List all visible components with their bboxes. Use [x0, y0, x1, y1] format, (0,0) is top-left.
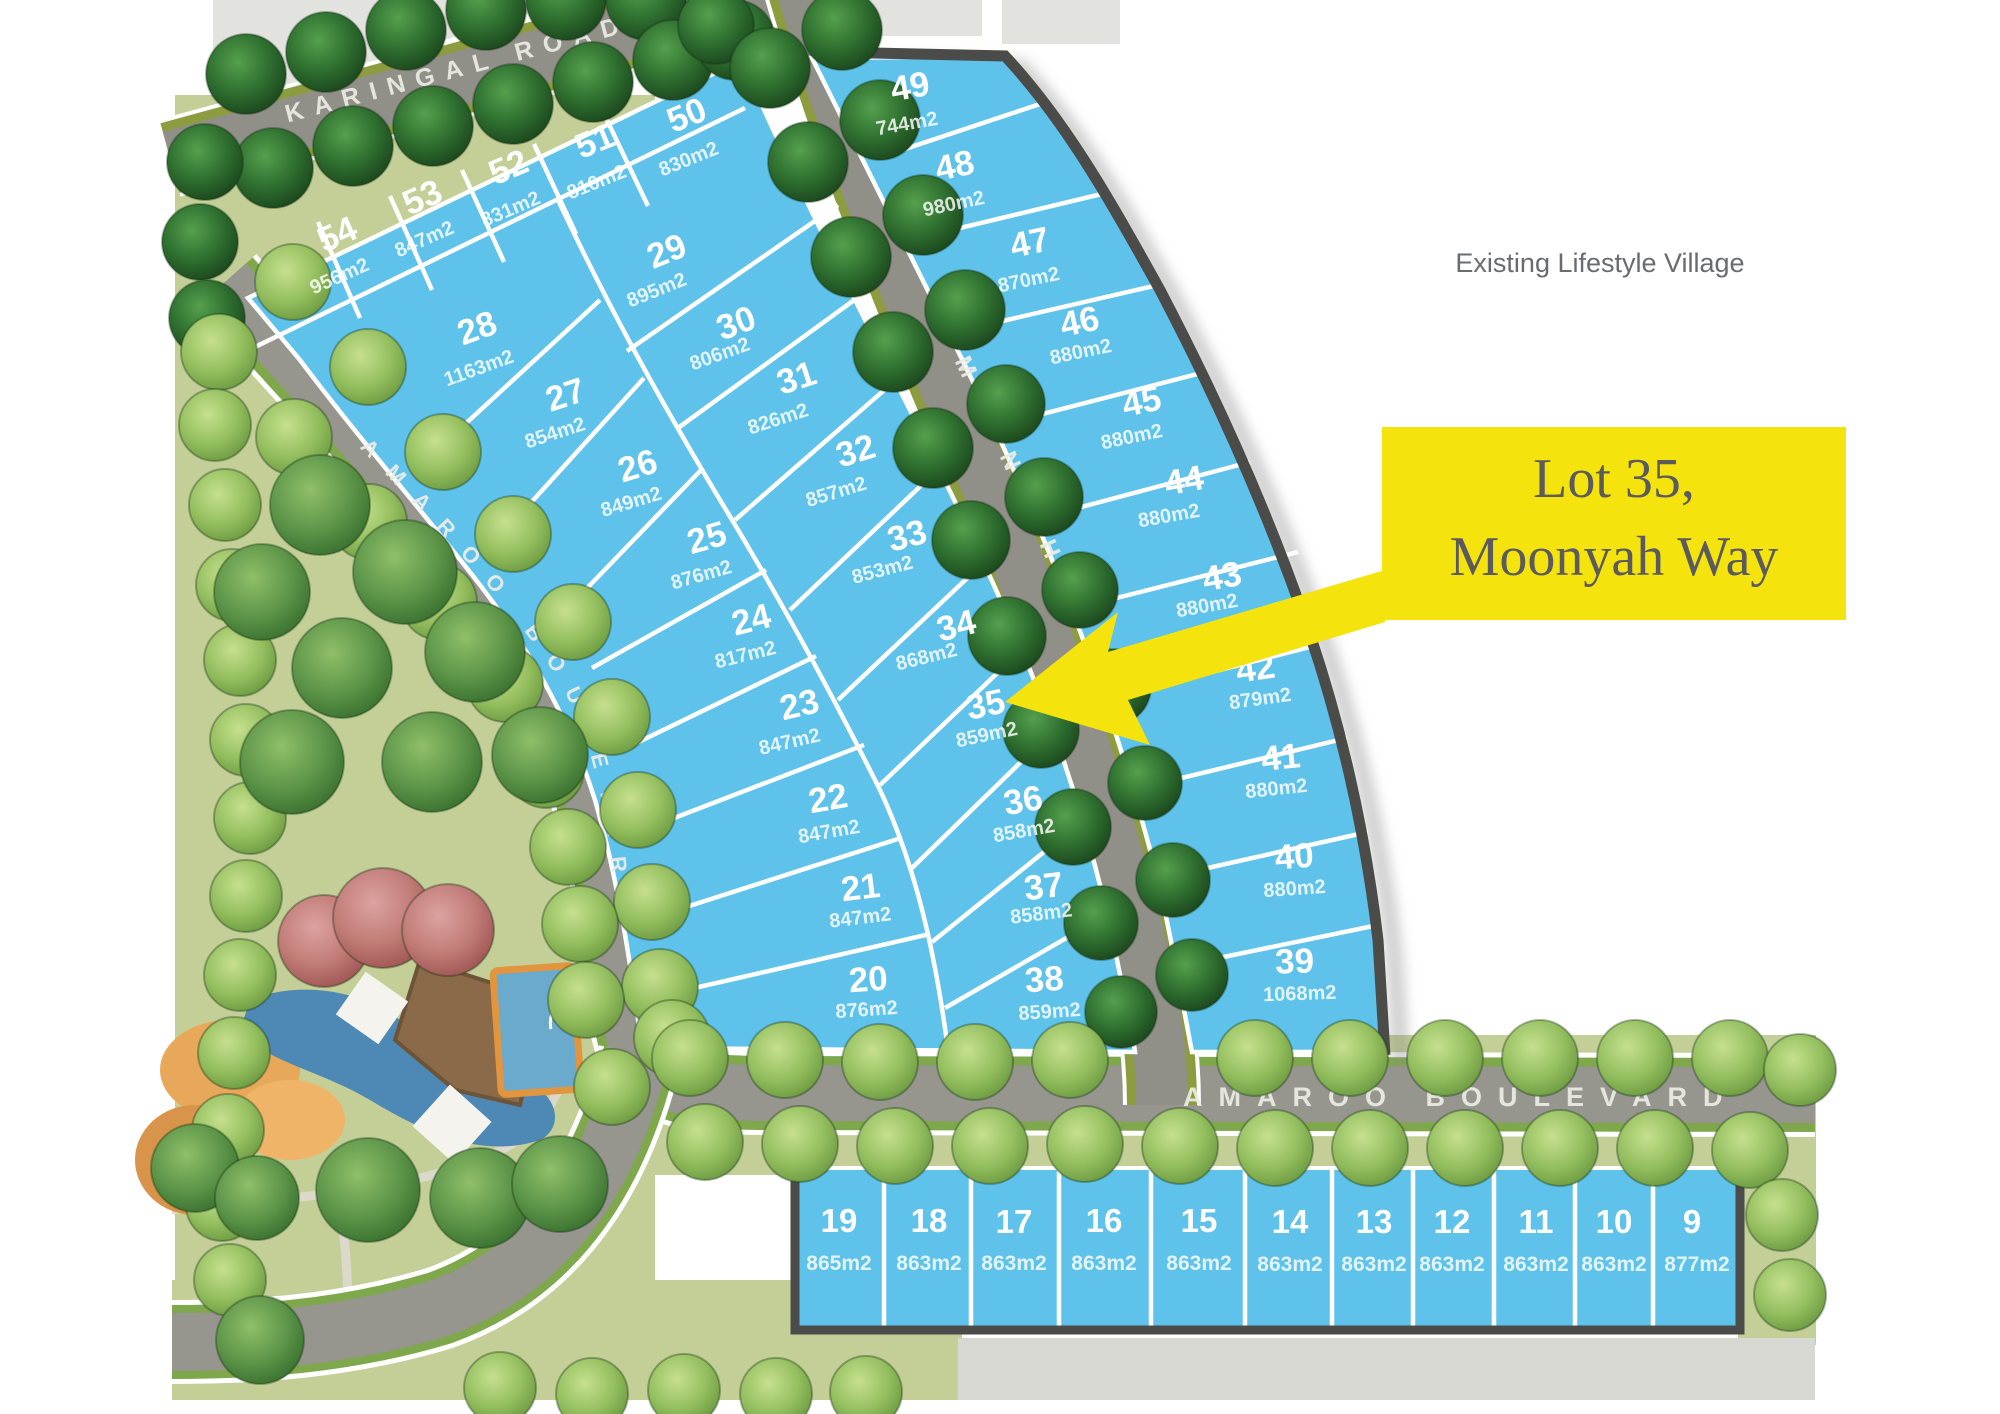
site-plan-map: KARINGAL ROAD MOONYAH AMAROO BOULEVARD A… [0, 0, 2000, 1414]
tree-icon [240, 710, 344, 814]
tree-icon [730, 28, 810, 108]
lot-area: 863m2 [1341, 1253, 1406, 1276]
tree-icon [925, 270, 1005, 350]
lot-area: 863m2 [981, 1252, 1046, 1275]
tree-icon [1136, 843, 1210, 917]
lot-number: 10 [1596, 1203, 1633, 1240]
tree-icon [652, 1020, 728, 1096]
tree-icon [1142, 1108, 1218, 1184]
lot-area: 1068m2 [1263, 982, 1337, 1007]
lot-area: 880m2 [1263, 876, 1327, 902]
lot-number: 12 [1434, 1203, 1471, 1240]
lot-area: 876m2 [835, 997, 899, 1023]
tree-icon [802, 0, 882, 70]
tree-icon [198, 1017, 270, 1089]
tree-icon [492, 707, 588, 803]
tree-icon [179, 389, 251, 461]
lot-number: 18 [911, 1202, 948, 1239]
tree-icon [330, 329, 406, 405]
tree-icon [206, 34, 286, 114]
tree-icon [215, 1156, 299, 1240]
tree-icon [233, 128, 313, 208]
tree-icon [1312, 1020, 1388, 1096]
tree-icon [189, 469, 261, 541]
lot-number: 15 [1181, 1202, 1218, 1239]
tree-icon [1407, 1020, 1483, 1096]
lot-number: 45 [1119, 379, 1165, 425]
tree-icon [1746, 1179, 1818, 1251]
tree-icon [667, 1104, 743, 1180]
lot-area: 859m2 [1018, 999, 1082, 1025]
tree-icon [204, 939, 276, 1011]
tree-icon [967, 365, 1045, 443]
tree-icon [853, 312, 933, 392]
tree-icon [535, 584, 611, 660]
tree-icon [216, 1296, 304, 1384]
pavement-bottom-right [958, 1338, 1815, 1400]
tree-icon [1032, 1022, 1108, 1098]
tree-icon [1042, 552, 1118, 628]
tree-icon [1502, 1020, 1578, 1096]
tree-icon [1712, 1112, 1788, 1188]
lot-area: 863m2 [1071, 1252, 1136, 1275]
tree-icon [464, 1352, 536, 1414]
tree-icon [366, 0, 446, 70]
lot-area: 865m2 [806, 1252, 871, 1275]
tree-icon [353, 520, 457, 624]
tree-icon [1005, 458, 1083, 536]
lot-number: 11 [1519, 1203, 1554, 1240]
tree-icon [893, 408, 973, 488]
tree-icon [648, 1354, 720, 1414]
annotation-existing-village: Existing Lifestyle Village [1455, 248, 1744, 278]
tree-icon [553, 42, 633, 122]
lot-area: 863m2 [1581, 1253, 1646, 1276]
tree-icon [270, 455, 370, 555]
tree-icon [530, 809, 606, 885]
tree-icon [286, 12, 366, 92]
callout-line2: Moonyah Way [1450, 526, 1779, 588]
tree-icon [1617, 1110, 1693, 1186]
lot-number: 17 [996, 1203, 1033, 1240]
tree-icon [316, 1138, 420, 1242]
tree-icon [1217, 1020, 1293, 1096]
lot-number: 20 [847, 959, 889, 1001]
tree-icon [968, 597, 1046, 675]
tree-icon [1597, 1020, 1673, 1096]
tree-icon [167, 124, 243, 200]
tree-icon [1064, 886, 1138, 960]
tree-icon [1522, 1110, 1598, 1186]
lot-number: 48 [932, 143, 978, 189]
tree-icon [512, 1136, 608, 1232]
lot-number: 44 [1161, 458, 1207, 503]
lot-area: 863m2 [1166, 1252, 1231, 1275]
tree-icon [162, 204, 238, 280]
tree-icon [393, 86, 473, 166]
tree-icon [1047, 1106, 1123, 1182]
tree-icon [747, 1022, 823, 1098]
tree-icon [382, 712, 482, 812]
tree-icon [1754, 1259, 1826, 1331]
tree-icon [1108, 746, 1182, 820]
pavement-stub [1002, 0, 1120, 44]
lot-number: 16 [1086, 1202, 1123, 1239]
lot-area: 863m2 [1257, 1253, 1322, 1276]
lot-number: 9 [1683, 1203, 1701, 1240]
tree-icon [548, 962, 624, 1038]
lot-number: 41 [1259, 736, 1302, 779]
tree-icon [405, 414, 481, 490]
tree-icon [313, 106, 393, 186]
tree-icon [1764, 1034, 1836, 1106]
lot-area: 863m2 [896, 1252, 961, 1275]
lot-number: 13 [1356, 1203, 1393, 1240]
lot-number: 21 [839, 866, 882, 909]
lot-number: 49 [887, 64, 932, 109]
tree-icon [1427, 1110, 1503, 1186]
lot-number: 47 [1007, 220, 1053, 266]
tree-icon [214, 544, 310, 640]
lot-number: 38 [1023, 959, 1065, 1001]
tree-icon [475, 496, 551, 572]
tree-icon [402, 884, 494, 976]
tree-icon [181, 314, 257, 390]
lot-area: 863m2 [1419, 1253, 1484, 1276]
tree-icon [614, 864, 690, 940]
tree-icon [811, 217, 891, 297]
lot-number: 39 [1274, 941, 1314, 981]
tree-icon [1332, 1110, 1408, 1186]
tree-icon [600, 772, 676, 848]
tree-icon [937, 1024, 1013, 1100]
tree-icon [425, 602, 525, 702]
tree-icon [952, 1108, 1028, 1184]
tree-icon [842, 1024, 918, 1100]
lot-area: 877m2 [1664, 1253, 1729, 1276]
tree-icon [768, 122, 848, 202]
tree-icon [1156, 939, 1228, 1011]
tree-icon [542, 886, 618, 962]
lot-area: 863m2 [1503, 1253, 1568, 1276]
lot-number: 14 [1272, 1203, 1309, 1240]
tree-icon [857, 1108, 933, 1184]
lot-number: 19 [821, 1202, 858, 1239]
tree-icon [1237, 1110, 1313, 1186]
tree-icon [1692, 1020, 1768, 1096]
tree-icon [292, 618, 392, 718]
lot-number: 40 [1273, 836, 1315, 878]
callout-line1: Lot 35, [1533, 448, 1695, 510]
lot-number: 22 [805, 776, 850, 821]
subdivision-south-strip [795, 1168, 1740, 1330]
tree-icon [210, 860, 282, 932]
tree-icon [574, 1049, 650, 1125]
tree-icon [473, 64, 553, 144]
tree-icon [762, 1106, 838, 1182]
tree-icon [932, 501, 1010, 579]
